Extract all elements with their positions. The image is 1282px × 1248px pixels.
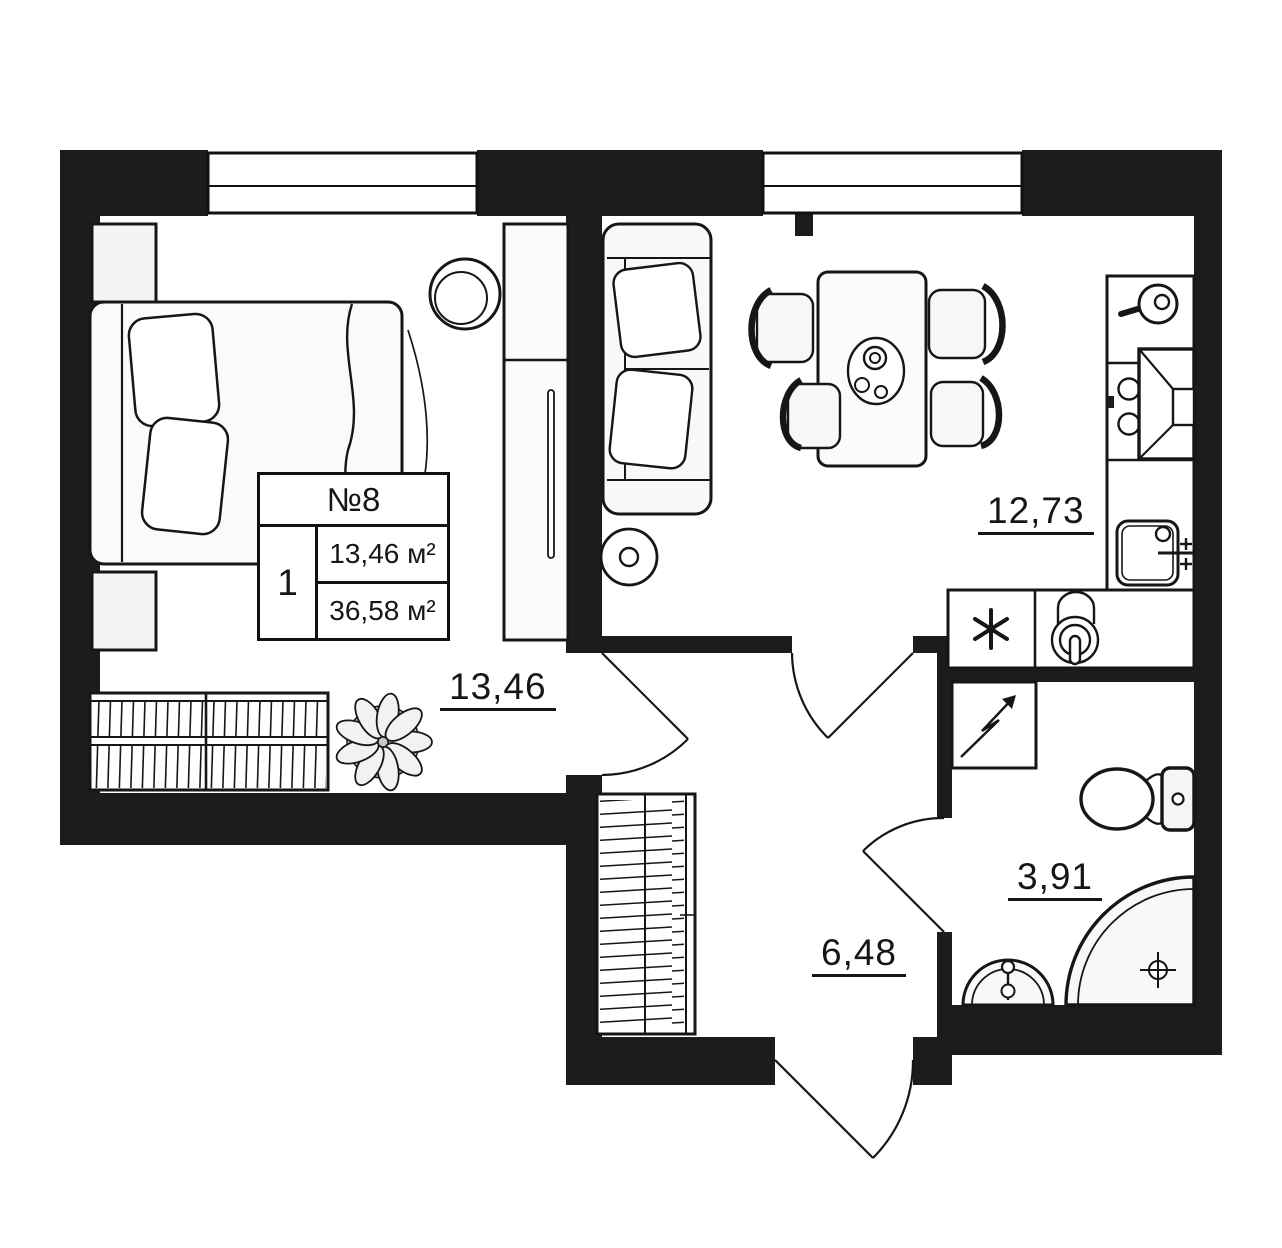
chair-icon (931, 378, 999, 446)
room-area-label-hallway: 6,48 (812, 934, 906, 977)
water-heater-icon (952, 682, 1036, 768)
nightstand-icon (92, 224, 156, 302)
hallway-furniture (597, 794, 695, 1034)
wall-bath-bottom (937, 1005, 1222, 1055)
room-area-label-bedroom: 13,46 (440, 668, 556, 711)
pillow-icon (612, 261, 702, 358)
room-area-label-kitchen-living: 12,73 (978, 492, 1094, 535)
living-door-swing-icon (792, 653, 913, 738)
room-area-label-bathroom: 3,91 (1008, 858, 1102, 901)
floor-plan: №8 1 13,46 м² 36,58 м² 13,46 12,73 6,48 … (0, 0, 1282, 1248)
chair-icon (929, 286, 1003, 362)
unit-info-card: №8 1 13,46 м² 36,58 м² (257, 472, 450, 641)
dresser-icon (90, 693, 328, 790)
window-icon (208, 153, 477, 213)
unit-living-area: 13,46 м² (318, 527, 447, 584)
boiler-icon (1052, 592, 1098, 664)
pillow-icon (127, 313, 220, 428)
wall-living-hall (602, 636, 792, 653)
living-furniture (601, 224, 1194, 668)
wardrobe-icon (504, 224, 568, 640)
bedroom-door-swing-icon (602, 653, 688, 775)
pillow-icon (608, 368, 693, 469)
floor-plan-art (0, 0, 1282, 1248)
chair-icon (783, 380, 840, 448)
wall-hall-bottom (566, 1037, 775, 1085)
wall-window-pier (795, 212, 813, 236)
window-icon (763, 153, 1022, 213)
unit-number: №8 (260, 475, 447, 527)
entrance-door-swing-icon (775, 1060, 913, 1158)
bathroom-fixtures (952, 682, 1194, 1005)
toilet-icon (1081, 768, 1194, 830)
pillow-icon (140, 416, 229, 536)
wall-top-right (1022, 150, 1222, 216)
wall-top-mid (477, 150, 763, 216)
mirror-icon (430, 259, 500, 329)
floor-lamp-icon (601, 529, 657, 585)
wall-bedroom-living (566, 205, 602, 653)
sofa-icon (603, 224, 711, 514)
bathroom-door-swing-icon (863, 818, 944, 932)
washbasin-icon (963, 960, 1053, 1005)
wall-bath-left-bottom (937, 932, 952, 1007)
chair-icon (752, 290, 814, 366)
plant-icon (333, 692, 432, 792)
unit-rooms-count: 1 (260, 527, 318, 638)
wall-bath-left-top (937, 650, 952, 818)
wall-bedroom-bottom (60, 793, 602, 845)
unit-total-area: 36,58 м² (318, 584, 447, 638)
wall-right (1194, 150, 1222, 1055)
nightstand-icon (92, 572, 156, 650)
hall-wardrobe-icon (597, 794, 695, 1034)
extractor-hood-icon (1139, 349, 1194, 459)
